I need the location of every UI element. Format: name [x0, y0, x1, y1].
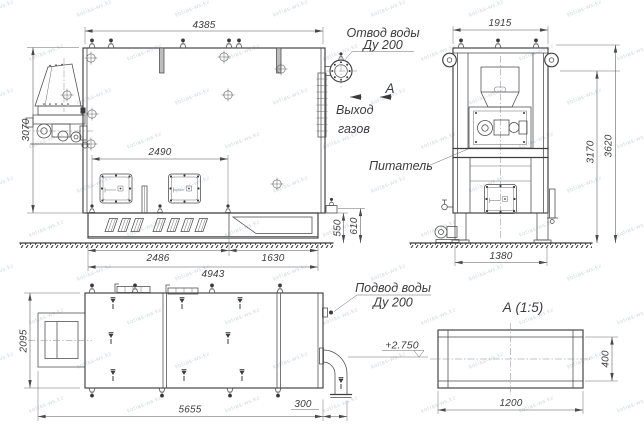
dim-duct-width: 1200	[499, 398, 522, 409]
dim-base-height: 550	[333, 219, 344, 237]
elevation-value: +2.750	[385, 340, 419, 352]
section-a-view: 400 1200 А (1:5)	[430, 300, 618, 414]
access-door	[100, 174, 132, 203]
feeder-box-plan	[28, 313, 92, 367]
dim-body-height: 3070	[21, 118, 32, 141]
plan-body	[85, 293, 323, 388]
technical-drawing: 4385 3070 2490 2486 1630 4943 550 610	[0, 0, 644, 430]
ground-hatch	[20, 244, 333, 249]
water-supply-stub	[323, 308, 334, 317]
side-valve	[442, 200, 453, 210]
gas-duct-flange	[317, 73, 328, 137]
drain-pipe	[547, 189, 558, 224]
access-door	[169, 174, 201, 203]
center-marks	[85, 51, 288, 191]
dim-pipe-stub: 300	[294, 399, 312, 410]
lifting-lug	[545, 53, 559, 67]
section-title: А (1:5)	[502, 300, 544, 315]
dim-base-total: 4943	[201, 269, 224, 280]
gas-outlet-label-1: Выход	[336, 103, 374, 117]
plan-view	[28, 284, 352, 398]
plan-view-dimensions: 2095 5655 300	[19, 293, 348, 421]
dim-overall-length: 4385	[192, 20, 215, 31]
lifting-lug	[443, 53, 457, 67]
water-supply-label-2: Ду 200	[371, 296, 413, 310]
dim-ledge-height: 610	[349, 217, 360, 235]
dim-end-base-width: 1380	[489, 251, 512, 262]
roof-fittings	[89, 39, 242, 49]
dim-base-front: 2486	[145, 253, 169, 264]
drawing-page: kotlas-ws.kzkotlas-ws.kzkotlas-ws.kzkotl…	[0, 0, 644, 430]
dim-doors-span: 2490	[147, 147, 171, 158]
base-frame	[88, 198, 337, 238]
dim-end-height-total: 3620	[604, 134, 615, 157]
side-view-dimensions: 4385 3070 2490 2486 1630 4943 550 610	[21, 20, 365, 280]
pipe-stub	[160, 48, 165, 73]
feeder-machine-end	[469, 107, 531, 148]
feed-hopper	[481, 67, 519, 107]
dim-plan-width: 2095	[19, 329, 30, 353]
bottom-edge-fittings	[89, 388, 281, 398]
support-leg	[537, 213, 548, 240]
elevation-mark: +2.750	[348, 340, 428, 358]
water-outlet-label-2: Ду 200	[361, 38, 403, 52]
water-supply-label-1: Подвод воды	[355, 281, 431, 295]
plan-valves	[109, 298, 245, 381]
dim-end-width: 1915	[488, 18, 511, 29]
side-view	[20, 39, 357, 249]
dim-base-rear: 1630	[261, 253, 284, 264]
end-view	[410, 39, 592, 249]
ground-hatch	[410, 244, 592, 249]
dim-duct-height: 400	[601, 350, 612, 368]
water-outlet-flange	[325, 52, 357, 88]
gas-outlet-label-2: газов	[338, 122, 370, 136]
top-edge-fittings	[89, 284, 283, 295]
ash-chute	[233, 217, 312, 234]
boiler-body	[83, 48, 325, 213]
dim-plan-length: 5655	[178, 405, 201, 416]
dim-end-height-mid: 3170	[586, 140, 597, 163]
supply-elbow-pipe	[320, 348, 352, 398]
end-view-dimensions: 1915 1380 3170 3620	[453, 18, 620, 266]
annotations: Отвод воды Ду 200 А Выход газов Питатель…	[334, 26, 468, 357]
view-letter: А	[384, 81, 394, 96]
pipe-stub	[277, 48, 282, 73]
feeder-label: Питатель	[369, 159, 433, 173]
